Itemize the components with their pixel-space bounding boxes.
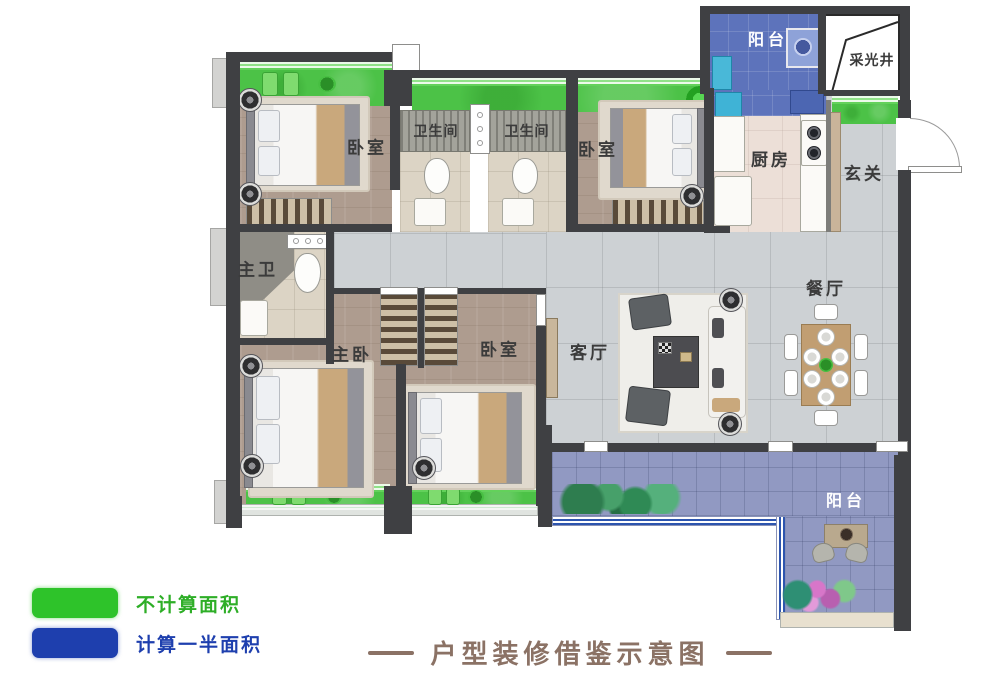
post-dot: [477, 140, 483, 146]
pillow: [420, 398, 442, 434]
room-label-entry: 玄关: [844, 160, 884, 185]
sofa-cushion: [712, 368, 724, 388]
bay-cushion: [428, 488, 442, 505]
wall-balcony-lightwell: [818, 6, 826, 94]
wall-kitchen-entry: [826, 100, 831, 232]
ceiling-speaker: [412, 456, 436, 480]
kitchen-counter-left: [713, 116, 745, 172]
room-label-master-bedroom: 主卧: [332, 341, 372, 366]
bathroom-1-toilet: [424, 158, 450, 194]
legend-item-no-area: 不计算面积: [32, 588, 241, 618]
washing-machine-drum: [794, 38, 812, 56]
room-label-light-well: 采光井: [850, 50, 895, 70]
wall-pillar-bottom: [384, 486, 412, 534]
ceiling-speaker: [719, 288, 743, 312]
stove-burner: [807, 126, 821, 140]
room-label-master-bathroom: 主卫: [238, 256, 278, 281]
window-pier: [584, 441, 608, 452]
room-label-living-room: 客厅: [570, 339, 610, 364]
wall-between-bottom-bedrooms: [396, 364, 406, 504]
wall-top-middle: [392, 70, 708, 78]
armchair: [628, 293, 672, 330]
plate: [817, 328, 835, 346]
wall-balcony-left-pillar: [538, 425, 552, 527]
room-label-bedroom-top-left: 卧室: [347, 134, 387, 159]
sofa-cushion: [712, 318, 724, 338]
wall-balcony-left: [700, 6, 710, 94]
stove-burner: [807, 146, 821, 160]
window-pier: [768, 441, 793, 452]
legend-swatch-green: [32, 588, 118, 618]
wall-closet-divider: [418, 290, 424, 368]
bedroom-bottom-door-gap: [536, 294, 546, 326]
bed-headboard: [246, 104, 255, 186]
balcony-flower-pots: [782, 574, 860, 612]
ceiling-speaker: [680, 184, 704, 208]
pillow: [672, 148, 692, 176]
window-pier: [876, 441, 908, 452]
wall-right-main: [898, 170, 911, 456]
entry-door-leaf: [908, 166, 962, 173]
wardrobe-bedroom-top-left: [246, 198, 332, 226]
wall-top-right: [700, 6, 910, 14]
bay-plant: [318, 76, 336, 92]
bathroom-2-toilet: [512, 158, 538, 194]
plate: [831, 348, 849, 366]
bathroom-2-sink: [502, 198, 534, 226]
wall-top-left: [226, 52, 392, 62]
balcony-sink: [712, 56, 732, 90]
armchair: [625, 386, 671, 427]
floor-plan-canvas: 卧室 卫生间 卫生间 卧室 厨房 玄关 阳台 采光井 主卫 主卧 卧室 客厅 餐…: [0, 0, 1000, 689]
pillow: [258, 110, 280, 142]
vanity-dot: [305, 238, 311, 244]
post-dot: [477, 126, 483, 132]
room-label-dining-room: 餐厅: [806, 275, 846, 300]
dining-chair: [814, 304, 838, 320]
plan-title: 户型装修借鉴示意图: [330, 634, 810, 671]
bathroom-1-sink: [414, 198, 446, 226]
room-label-bathroom-2: 卫生间: [505, 121, 550, 141]
ceiling-speaker: [718, 412, 742, 436]
master-bath-sink: [240, 300, 268, 336]
tv-console: [546, 318, 558, 398]
balcony-kettle: [840, 528, 853, 541]
dining-centerpiece: [819, 358, 833, 372]
legend-swatch-blue: [32, 628, 118, 658]
closet-master: [380, 292, 418, 366]
wall-kitchen-bottom-stub: [712, 226, 730, 233]
dining-chair: [854, 370, 868, 396]
closet-door-gap: [380, 287, 418, 295]
vanity-dot: [317, 238, 323, 244]
ceiling-speaker: [239, 354, 263, 378]
room-label-balcony-bottom: 阳台: [826, 487, 866, 511]
pillow: [256, 376, 280, 420]
sofa-throw: [712, 398, 740, 412]
title-dash-right: [726, 651, 772, 655]
ceiling-speaker: [238, 182, 262, 206]
master-bath-toilet: [294, 253, 321, 293]
legend-label-half-area: 计算一半面积: [136, 630, 262, 657]
bay-plant: [468, 490, 484, 504]
bay-window-entry: [832, 96, 898, 124]
bay-cushion: [283, 72, 299, 96]
dining-chair: [814, 410, 838, 426]
coffee-table-tray: [658, 342, 672, 354]
room-label-bedroom-bottom: 卧室: [480, 336, 520, 361]
coffee-table-book: [680, 352, 692, 362]
plate: [831, 370, 849, 388]
ceiling-speaker: [238, 88, 262, 112]
entry-door-arc: [910, 118, 960, 168]
dining-chair: [784, 334, 798, 360]
legend-label-no-area: 不计算面积: [136, 590, 241, 617]
pillow: [258, 146, 280, 176]
room-label-kitchen: 厨房: [751, 146, 791, 171]
wall-left: [226, 52, 240, 514]
balcony-railing-horizontal: [552, 516, 786, 526]
room-label-bathroom-1: 卫生间: [414, 121, 459, 141]
wall-bedroom2-bottom: [568, 224, 712, 232]
wall-bedroom1-bath1: [390, 78, 400, 190]
wall-bedroom1-bottom: [240, 224, 392, 232]
room-label-balcony-top: 阳台: [748, 26, 788, 50]
dining-chair: [784, 370, 798, 396]
balcony-plants: [556, 484, 688, 514]
post-dot: [477, 112, 483, 118]
title-dash-left: [368, 651, 414, 655]
wall-bottom-left-end: [226, 496, 242, 528]
title-text: 户型装修借鉴示意图: [430, 634, 709, 671]
balcony-bottom-sill: [780, 612, 894, 628]
room-label-bedroom-top-right: 卧室: [578, 136, 618, 161]
closet-bedroom-bottom: [424, 292, 458, 366]
bay-cushion: [262, 72, 278, 96]
plate: [803, 370, 821, 388]
wall-balcony-right: [894, 455, 911, 631]
wall-masterbath-bottom: [234, 338, 334, 345]
pillow: [672, 114, 692, 144]
closet-door-gap: [424, 287, 458, 295]
wall-right-upper: [898, 100, 911, 118]
wall-bath2-bedroom2: [566, 72, 578, 232]
bay-cushion: [446, 488, 460, 505]
vanity-dot: [293, 238, 299, 244]
ceiling-speaker: [240, 454, 264, 478]
kitchen-fridge: [714, 176, 752, 226]
wall-lightwell-right: [900, 6, 910, 102]
legend-item-half-area: 计算一半面积: [32, 628, 262, 658]
wall-kitchen-left: [704, 88, 714, 233]
wall-lightwell-bottom: [824, 90, 900, 96]
plate: [817, 388, 835, 406]
hallway-floor: [334, 232, 546, 290]
dining-chair: [854, 334, 868, 360]
